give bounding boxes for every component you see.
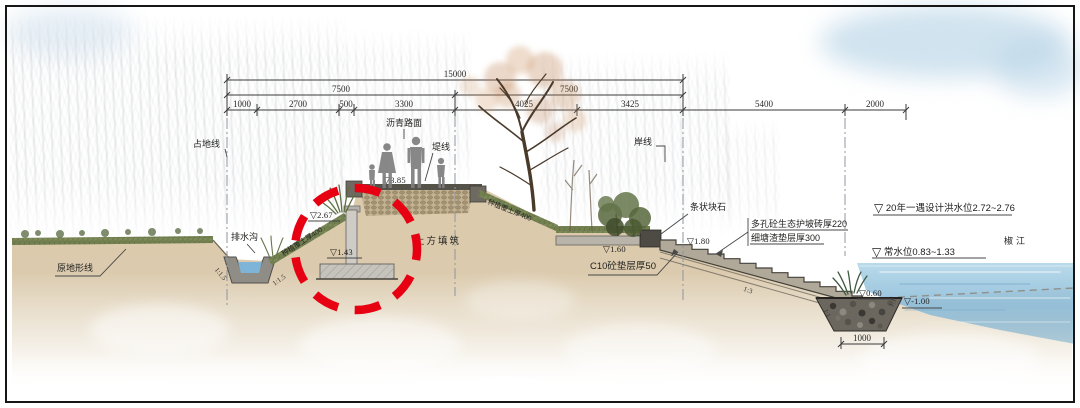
highlight-circle — [282, 175, 430, 323]
cross-section-drawing: 15000 7500 7500 1000 2700 500 3300 4025 … — [0, 0, 1080, 408]
toe-grass-tuft — [833, 271, 867, 295]
strip-trees — [565, 160, 597, 232]
shrub-cluster — [598, 192, 651, 237]
foreground-overlay — [0, 0, 1080, 408]
ditch-edge-grass — [261, 236, 283, 258]
family-figures — [369, 137, 445, 188]
autumn-tree — [460, 46, 587, 210]
